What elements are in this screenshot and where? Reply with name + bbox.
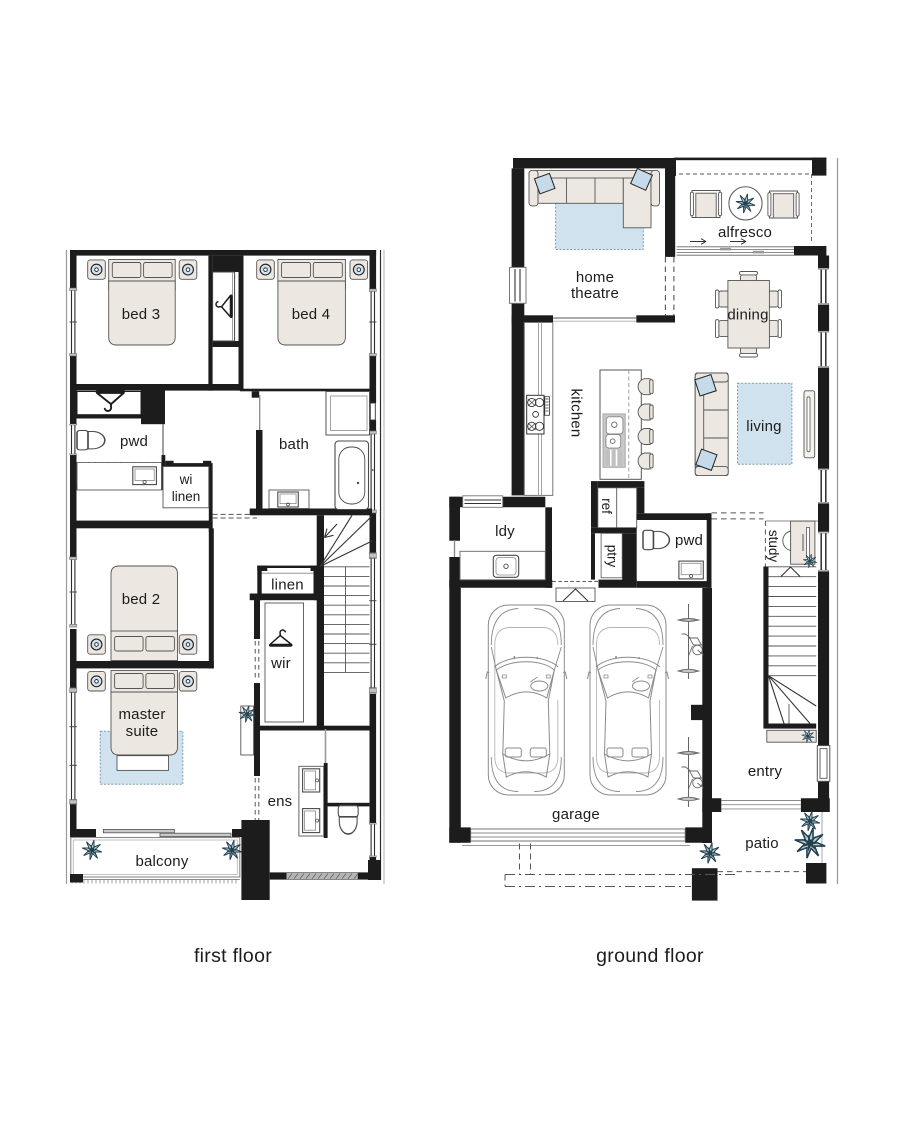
svg-text:living: living [746,418,781,435]
svg-text:ground floor: ground floor [596,945,704,967]
svg-text:ptry: ptry [605,545,620,568]
svg-text:study: study [766,530,781,563]
svg-text:linen: linen [271,577,304,594]
svg-text:balcony: balcony [135,853,188,870]
svg-text:pwd: pwd [120,433,148,450]
svg-text:ens: ens [268,793,293,810]
svg-text:linen: linen [172,489,201,504]
svg-text:master: master [118,706,165,723]
svg-text:ldy: ldy [495,523,515,540]
svg-text:pwd: pwd [675,532,703,549]
svg-text:bath: bath [279,436,309,453]
svg-text:theatre: theatre [571,285,619,302]
svg-text:dining: dining [727,307,768,324]
svg-text:home: home [576,269,614,286]
svg-text:ref: ref [599,498,614,514]
svg-text:bed 3: bed 3 [122,306,161,323]
svg-text:wi: wi [179,472,193,487]
svg-text:bed 2: bed 2 [122,591,161,608]
svg-text:kitchen: kitchen [568,389,585,438]
svg-text:garage: garage [552,806,600,823]
svg-text:entry: entry [748,763,783,780]
svg-text:bed 4: bed 4 [292,306,331,323]
svg-text:wir: wir [270,655,291,672]
svg-text:patio: patio [745,835,779,852]
svg-text:suite: suite [126,723,159,740]
svg-text:first floor: first floor [194,945,272,967]
svg-text:alfresco: alfresco [718,224,772,241]
